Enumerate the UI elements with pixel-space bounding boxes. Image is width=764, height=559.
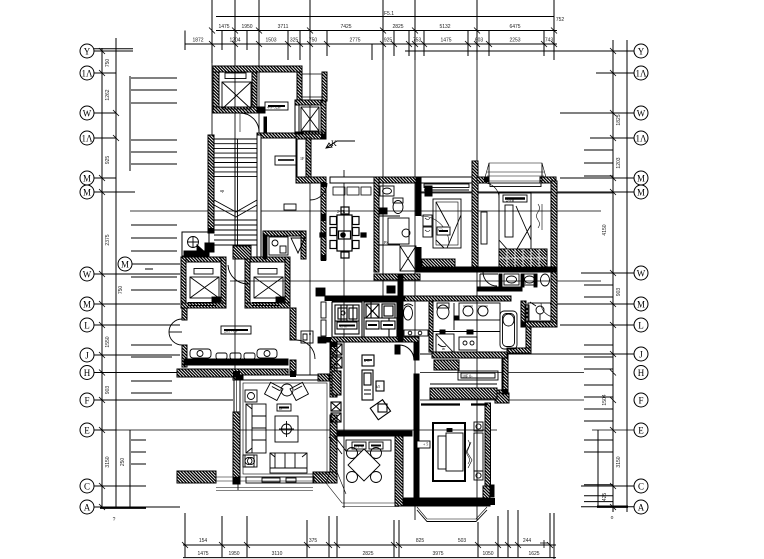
svg-text:+ 5: + 5 bbox=[423, 442, 428, 447]
svg-text:w: w bbox=[442, 346, 445, 351]
svg-text:F: F bbox=[84, 396, 89, 406]
svg-text:H: H bbox=[84, 368, 91, 378]
svg-text:2-FB: 2-FB bbox=[337, 209, 346, 214]
svg-text:425: 425 bbox=[602, 493, 608, 502]
svg-text:1050: 1050 bbox=[482, 551, 493, 557]
svg-text:3110: 3110 bbox=[272, 551, 283, 557]
svg-text:W: W bbox=[637, 269, 646, 279]
svg-text:925: 925 bbox=[384, 38, 393, 44]
svg-text:3711: 3711 bbox=[278, 24, 289, 30]
svg-text:M: M bbox=[637, 174, 645, 184]
svg-text:1872: 1872 bbox=[192, 38, 203, 44]
svg-text:1262: 1262 bbox=[105, 89, 111, 100]
svg-text:1Ʌ: 1Ʌ bbox=[81, 134, 93, 144]
svg-text:1550: 1550 bbox=[105, 336, 111, 347]
svg-text:W: W bbox=[83, 270, 92, 280]
svg-text:3150: 3150 bbox=[616, 456, 622, 467]
svg-text:A: A bbox=[638, 503, 645, 513]
svg-text:903: 903 bbox=[105, 386, 111, 395]
svg-text:1F: 1F bbox=[300, 156, 305, 161]
svg-text:?: ? bbox=[113, 517, 116, 523]
svg-text:1204: 1204 bbox=[229, 38, 240, 44]
svg-text:3150: 3150 bbox=[105, 456, 111, 467]
svg-text:M: M bbox=[637, 300, 645, 310]
svg-text:6475: 6475 bbox=[509, 24, 520, 30]
svg-text:up: up bbox=[220, 188, 224, 193]
svg-text:753: 753 bbox=[413, 38, 422, 44]
svg-text:1475: 1475 bbox=[440, 38, 451, 44]
svg-text:L: L bbox=[84, 321, 90, 331]
svg-text:750: 750 bbox=[118, 286, 124, 295]
svg-text:825: 825 bbox=[416, 538, 425, 544]
svg-text:1203: 1203 bbox=[616, 157, 622, 168]
svg-text:752: 752 bbox=[556, 17, 565, 23]
svg-text:H: H bbox=[638, 368, 645, 378]
svg-text:1Ʌ: 1Ʌ bbox=[81, 69, 93, 79]
svg-text:1475: 1475 bbox=[197, 551, 208, 557]
svg-text:2825: 2825 bbox=[362, 551, 373, 557]
svg-text:Y: Y bbox=[638, 47, 645, 57]
svg-text:E: E bbox=[638, 426, 644, 436]
svg-text:J: J bbox=[85, 351, 89, 361]
svg-text:201 - 6F: 201 - 6F bbox=[224, 329, 238, 334]
svg-text:5132: 5132 bbox=[439, 24, 450, 30]
svg-text:503: 503 bbox=[458, 538, 467, 544]
svg-text:C: C bbox=[638, 482, 644, 492]
svg-text:2375: 2375 bbox=[105, 234, 111, 245]
svg-text:K: K bbox=[331, 139, 337, 148]
svg-text:J: J bbox=[639, 350, 643, 360]
svg-text:603: 603 bbox=[475, 38, 484, 44]
svg-text:925: 925 bbox=[105, 156, 111, 165]
svg-text:1503: 1503 bbox=[265, 38, 276, 44]
svg-text:1504: 1504 bbox=[602, 394, 608, 405]
svg-text:2-FB: 2-FB bbox=[506, 198, 515, 203]
svg-text:F: F bbox=[638, 396, 643, 406]
svg-text:L: L bbox=[638, 321, 644, 331]
svg-text:325: 325 bbox=[290, 38, 299, 44]
svg-text:F5.1: F5.1 bbox=[384, 11, 394, 17]
svg-text:C-07: C-07 bbox=[340, 324, 348, 329]
svg-text:7425: 7425 bbox=[340, 24, 351, 30]
svg-text:375: 375 bbox=[309, 538, 318, 544]
svg-text:2825: 2825 bbox=[392, 24, 403, 30]
svg-text:1625: 1625 bbox=[528, 551, 539, 557]
svg-text:E: E bbox=[84, 426, 90, 436]
svg-text:W: W bbox=[637, 109, 646, 119]
svg-text:W: W bbox=[83, 109, 92, 119]
svg-text:b: b bbox=[524, 280, 526, 285]
svg-text:1Ʌ: 1Ʌ bbox=[635, 134, 647, 144]
svg-text:903: 903 bbox=[616, 288, 622, 297]
svg-text:4-F-52B: 4-F-52B bbox=[267, 105, 281, 110]
svg-text:k5: k5 bbox=[376, 384, 380, 389]
svg-text:M: M bbox=[121, 260, 129, 270]
svg-text:M: M bbox=[637, 188, 645, 198]
svg-text:o: o bbox=[611, 515, 614, 521]
svg-text:M: M bbox=[83, 174, 91, 184]
svg-text:154: 154 bbox=[199, 538, 208, 544]
svg-text:M: M bbox=[83, 188, 91, 198]
svg-text:C: C bbox=[84, 482, 90, 492]
svg-text:Y: Y bbox=[84, 47, 91, 57]
svg-text:750: 750 bbox=[105, 59, 111, 68]
svg-text:A: A bbox=[84, 503, 91, 513]
svg-text:3975: 3975 bbox=[432, 551, 443, 557]
svg-text:M: M bbox=[83, 300, 91, 310]
svg-text:k-8: k-8 bbox=[364, 358, 369, 363]
svg-text:750: 750 bbox=[309, 38, 318, 44]
svg-text:1950: 1950 bbox=[241, 24, 252, 30]
svg-text:250: 250 bbox=[120, 458, 126, 467]
svg-text:2775: 2775 bbox=[349, 38, 360, 44]
svg-text:743: 743 bbox=[545, 38, 554, 44]
svg-text:C-F 0: C-F 0 bbox=[354, 444, 363, 449]
svg-text:244: 244 bbox=[523, 538, 532, 544]
svg-text:PS: PS bbox=[384, 240, 388, 245]
svg-text:C2: C2 bbox=[438, 228, 443, 233]
svg-text:1Ʌ: 1Ʌ bbox=[635, 69, 647, 79]
svg-text:1475: 1475 bbox=[218, 24, 229, 30]
svg-text:1825: 1825 bbox=[616, 114, 622, 125]
svg-text:2253: 2253 bbox=[509, 38, 520, 44]
svg-text:10F 0-: 10F 0- bbox=[462, 374, 473, 379]
svg-text:1950: 1950 bbox=[228, 551, 239, 557]
svg-text:4150: 4150 bbox=[602, 224, 608, 235]
